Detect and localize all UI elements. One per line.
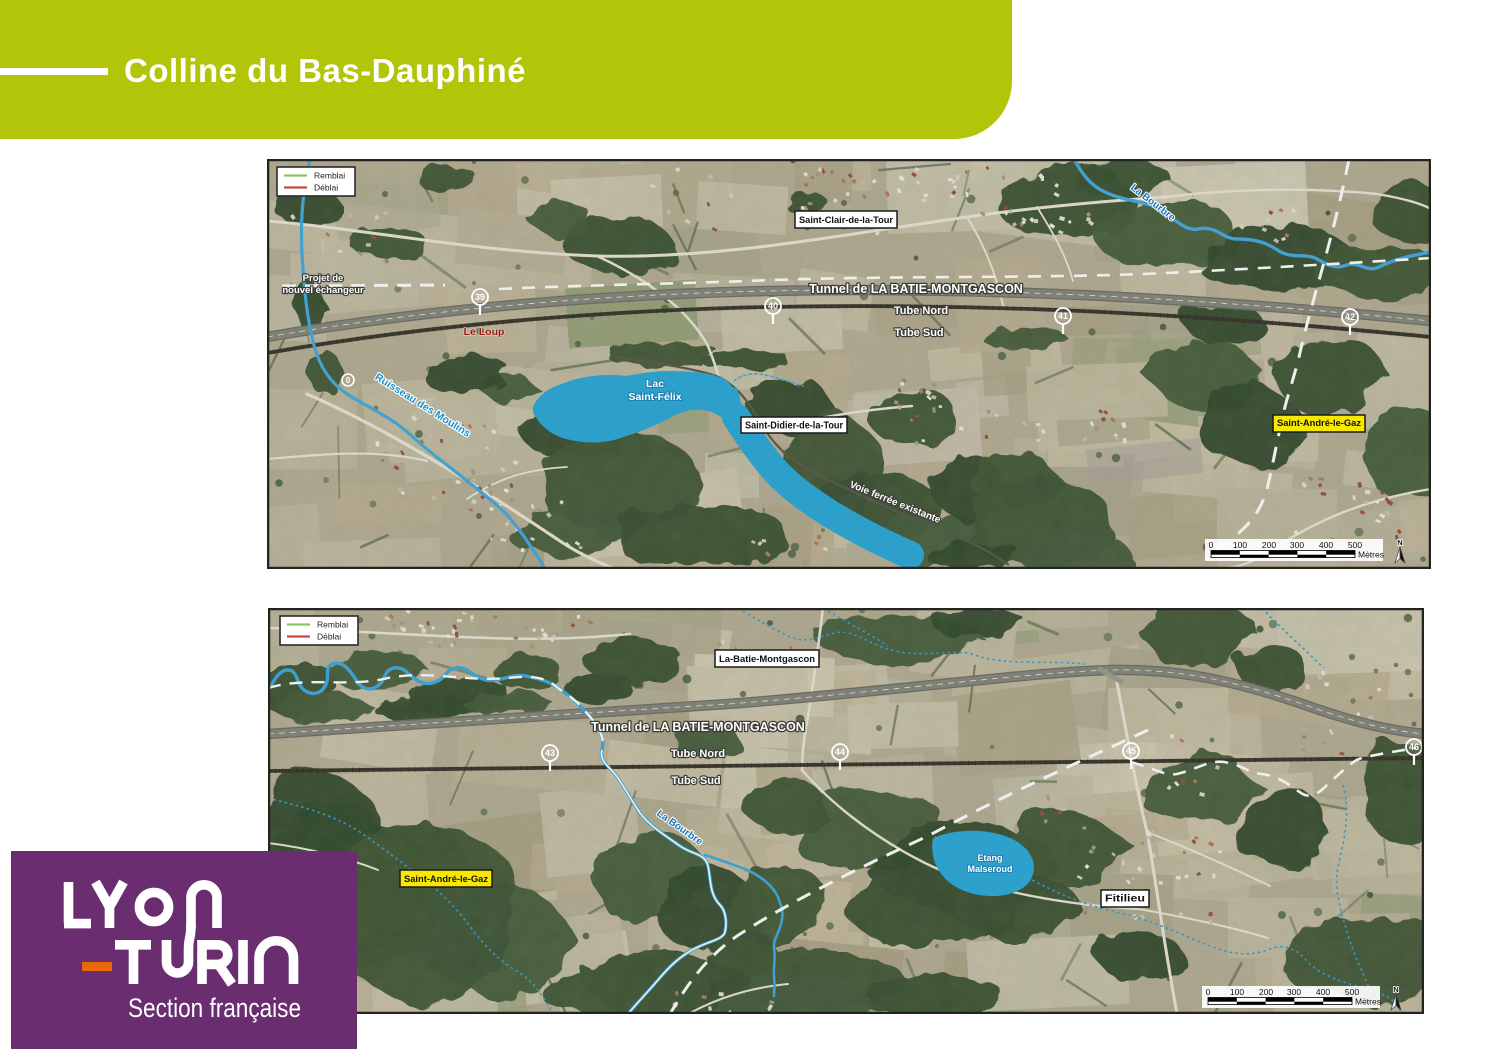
svg-text:44: 44 <box>835 747 845 757</box>
svg-text:100: 100 <box>1233 540 1247 550</box>
svg-text:Lac: Lac <box>646 378 664 390</box>
svg-text:Projet de: Projet de <box>303 273 344 284</box>
svg-text:300: 300 <box>1290 540 1304 550</box>
svg-text:Déblai: Déblai <box>317 632 341 642</box>
svg-text:46: 46 <box>1409 742 1419 752</box>
svg-text:nouvel échangeur: nouvel échangeur <box>282 285 364 296</box>
svg-text:300: 300 <box>1287 987 1301 997</box>
svg-text:Mètres: Mètres <box>1355 997 1381 1007</box>
svg-text:Tube Nord: Tube Nord <box>894 305 948 317</box>
svg-text:Saint-Félix: Saint-Félix <box>628 391 681 403</box>
svg-text:39: 39 <box>475 292 485 302</box>
svg-text:Tube Sud: Tube Sud <box>671 775 720 787</box>
svg-text:400: 400 <box>1319 540 1333 550</box>
svg-text:Saint-Clair-de-la-Tour: Saint-Clair-de-la-Tour <box>799 215 893 226</box>
svg-text:43: 43 <box>545 748 555 758</box>
svg-text:40: 40 <box>768 301 778 311</box>
svg-text:0: 0 <box>1206 987 1211 997</box>
svg-text:Mètres: Mètres <box>1358 550 1384 560</box>
svg-text:Tunnel de LA BATIE-MONTGASCON: Tunnel de LA BATIE-MONTGASCON <box>591 720 805 734</box>
svg-text:Fitilieu: Fitilieu <box>1105 893 1145 904</box>
svg-text:Etang: Etang <box>977 853 1002 863</box>
svg-text:Section française: Section française <box>128 993 301 1023</box>
svg-text:Malseroud: Malseroud <box>967 864 1012 874</box>
svg-text:Déblai: Déblai <box>314 183 338 193</box>
svg-text:100: 100 <box>1230 987 1244 997</box>
svg-text:N: N <box>1397 538 1402 547</box>
svg-text:200: 200 <box>1259 987 1273 997</box>
svg-text:400: 400 <box>1316 987 1330 997</box>
svg-text:45: 45 <box>1126 746 1136 756</box>
svg-text:42: 42 <box>1345 312 1355 322</box>
svg-text:Remblai: Remblai <box>317 620 348 630</box>
svg-text:Le Loup: Le Loup <box>464 326 505 338</box>
svg-text:Saint-André-le-Gaz: Saint-André-le-Gaz <box>404 874 489 884</box>
svg-text:Tube Nord: Tube Nord <box>671 748 725 760</box>
svg-text:Tube Sud: Tube Sud <box>894 327 943 339</box>
svg-text:200: 200 <box>1262 540 1276 550</box>
svg-text:0: 0 <box>346 376 351 385</box>
svg-text:500: 500 <box>1348 540 1362 550</box>
svg-text:N: N <box>1393 985 1398 994</box>
svg-text:Saint-Didier-de-la-Tour: Saint-Didier-de-la-Tour <box>745 420 843 431</box>
svg-text:La-Batie-Montgascon: La-Batie-Montgascon <box>719 654 815 665</box>
svg-text:Remblai: Remblai <box>314 171 345 181</box>
svg-text:500: 500 <box>1345 987 1359 997</box>
svg-text:0: 0 <box>1209 540 1214 550</box>
svg-text:Saint-André-le-Gaz: Saint-André-le-Gaz <box>1277 418 1362 428</box>
svg-text:41: 41 <box>1058 311 1068 321</box>
svg-text:Tunnel de LA BATIE-MONTGASCON: Tunnel de LA BATIE-MONTGASCON <box>809 282 1023 296</box>
